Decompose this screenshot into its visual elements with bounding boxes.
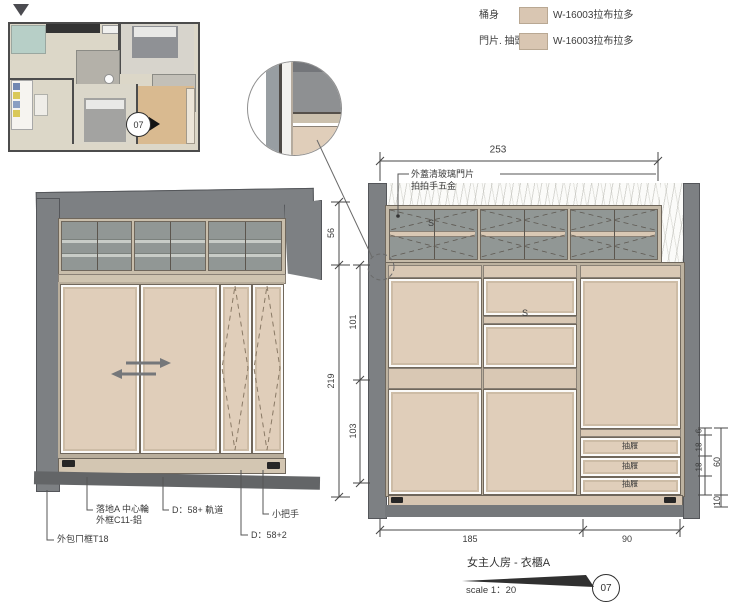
s-mark-glass: S	[428, 218, 434, 229]
dim-103: 103	[348, 423, 358, 438]
drawer-label: 抽屜	[622, 479, 638, 490]
kick-vent	[267, 462, 280, 469]
folding-door-panel	[252, 284, 284, 454]
cabinet-panel	[483, 324, 577, 368]
dim-56: 56	[326, 228, 336, 238]
mid-rail	[483, 368, 577, 389]
legend-swatch-body	[519, 7, 548, 24]
glass-door-section	[570, 209, 658, 260]
plan-coffee-table	[34, 94, 48, 116]
sliding-door-left	[60, 284, 140, 454]
sliding-door-right	[140, 284, 220, 454]
north-triangle-icon	[13, 4, 29, 16]
wall-hatch-right	[660, 183, 683, 262]
drawing-number-circle: 07	[592, 574, 620, 602]
cabinet-panel	[483, 278, 577, 316]
drawing-sheet: 07 桶身 W-16003拉布拉多 門片. 抽頭 W-16003拉布拉多	[0, 0, 740, 606]
balloon-gray-strip	[266, 62, 279, 155]
legend-swatch-door	[519, 33, 548, 50]
plan-detail-marker: 07	[126, 112, 151, 137]
dim-top: 253	[490, 145, 507, 156]
balloon-door	[293, 126, 341, 156]
legend-label: 桶身	[479, 10, 499, 22]
balloon-light-strip	[282, 62, 293, 155]
dim-6: 6	[695, 429, 704, 433]
drawing-number: 07	[600, 583, 611, 594]
glass-divider	[97, 222, 98, 270]
label-small-handle: 小把手	[272, 509, 299, 520]
plan-cushion	[13, 83, 20, 90]
glass-divider	[614, 210, 615, 259]
label-track-depth: D：58+ 軌道	[172, 505, 223, 516]
label-depth: D：58+2	[251, 530, 287, 541]
glass-divider	[170, 222, 171, 270]
cabinet-panel-tall	[580, 278, 681, 429]
balloon-glass	[293, 62, 341, 114]
shelf-rail	[483, 316, 577, 324]
plan-sofa	[11, 80, 33, 130]
plan-cushion	[13, 101, 20, 108]
cabinet-panel	[388, 389, 482, 495]
glass-door-section	[480, 209, 568, 260]
top-rail	[483, 265, 577, 278]
plan-bed-top	[132, 26, 178, 58]
drawer-label: 抽屜	[622, 461, 638, 472]
plan-bed-bottom	[84, 98, 126, 142]
balloon-rail	[293, 114, 341, 126]
cabinet-panel	[388, 278, 482, 368]
drawing-title: 女主人房 - 衣櫃A	[467, 557, 550, 570]
label-frame-alu: 外框C11-鋁	[96, 515, 142, 526]
plan-cushion	[13, 110, 20, 117]
drawer-gap-strip	[580, 429, 681, 437]
label-floor-wheel: 落地A 中心輪	[96, 504, 149, 515]
detail-balloon	[247, 61, 342, 156]
glass-note-line2: 拍拍手五金	[411, 181, 456, 192]
legend-value: W-16003拉布拉多	[553, 10, 633, 22]
dim-18b: 18	[695, 463, 704, 472]
glass-note-line1: 外蓋清玻璃門片	[411, 169, 474, 180]
plan-pillows	[134, 27, 176, 37]
glass-divider	[245, 222, 246, 270]
glass-mid-rail	[390, 231, 475, 237]
kick-vent	[391, 497, 403, 503]
legend-value: W-16003拉布拉多	[553, 36, 633, 48]
top-rail	[388, 265, 482, 278]
dim-90: 90	[622, 534, 632, 544]
cabinet-panel	[483, 389, 577, 495]
plan-cushion	[13, 92, 20, 99]
transom-glass-cabinet	[208, 221, 282, 271]
plan-room-entry	[11, 25, 46, 54]
legend-label: 門片. 抽頭	[479, 36, 525, 48]
dim-18a: 18	[695, 443, 704, 452]
drawing-scale: scale 1：20	[466, 585, 516, 596]
transom-glass-cabinet	[61, 221, 132, 271]
dim-10: 10	[712, 496, 722, 506]
floor-plan: 07	[8, 22, 200, 152]
s-mark-shelf: S	[522, 308, 528, 319]
wall-right-wedge	[284, 200, 322, 280]
dim-185: 185	[462, 534, 477, 544]
folding-door-panel	[220, 284, 252, 454]
wall-left	[36, 198, 60, 492]
glass-mid-rail	[481, 231, 565, 237]
plan-marker-number: 07	[133, 120, 143, 130]
kick-vent	[664, 497, 676, 503]
dim-101: 101	[348, 314, 358, 329]
plan-toilet	[104, 74, 114, 84]
mid-rail	[388, 368, 482, 389]
glass-mid-rail	[571, 231, 655, 237]
label-outer-frame: 外包ㄇ框T18	[57, 534, 109, 545]
plan-wardrobe-strip	[186, 88, 195, 144]
plan-pillows	[86, 100, 124, 109]
floor-base	[385, 505, 683, 517]
glass-door-section	[389, 209, 478, 260]
transom-glass-cabinet	[134, 221, 206, 271]
kick-vent	[62, 460, 75, 467]
top-rail	[580, 265, 681, 278]
drawer-label: 抽屜	[622, 441, 638, 452]
floor-base	[34, 471, 320, 489]
dim-60: 60	[712, 457, 722, 467]
balloon-glass-top	[293, 62, 341, 72]
plan-kitchen-counter	[46, 24, 100, 33]
dim-219: 219	[326, 373, 336, 388]
glass-divider	[524, 210, 525, 259]
